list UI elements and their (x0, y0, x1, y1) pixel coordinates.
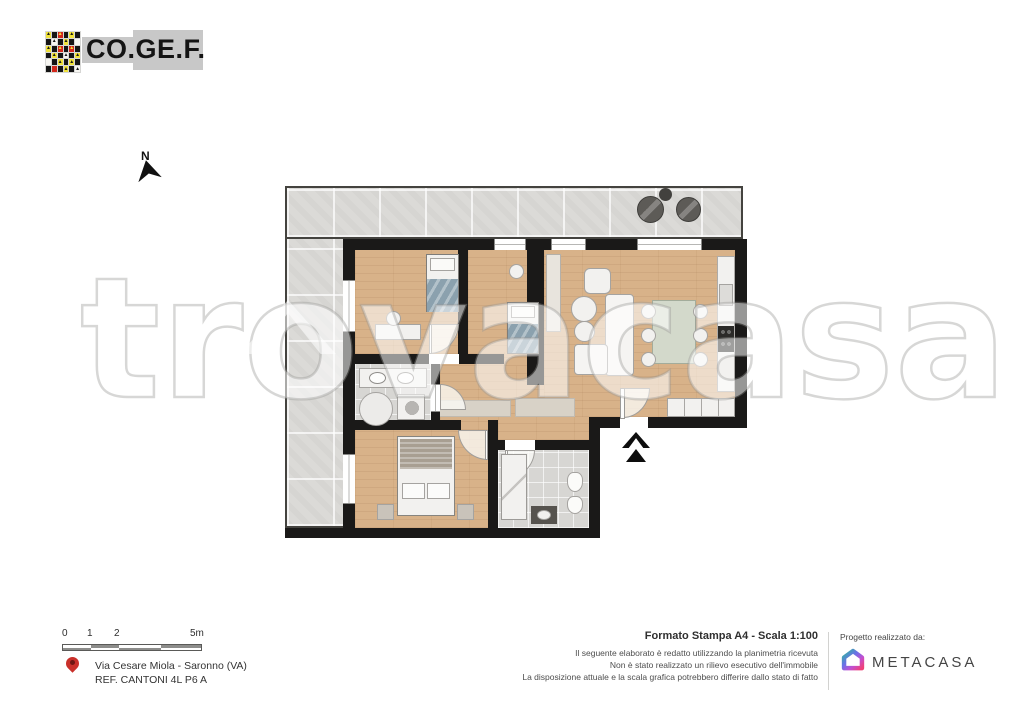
metacasa-brand-text: METACASA (872, 654, 977, 671)
wall-entry-side (589, 417, 600, 538)
bed-blanket (508, 324, 538, 353)
mosaic-cell (52, 59, 57, 65)
mosaic-cell (64, 32, 69, 38)
mosaic-cell: ▲ (64, 39, 69, 45)
mosaic-cell: ▲ (58, 32, 63, 38)
mosaic-cell: ▲ (64, 66, 69, 72)
mosaic-cell: ▲ (69, 32, 74, 38)
mosaic-cell (69, 39, 74, 45)
scale-bar (62, 644, 202, 651)
metacasa-house-icon (840, 647, 866, 673)
stove (718, 326, 734, 352)
credits-label: Progetto realizzato da: (840, 632, 925, 642)
mosaic-cell: ▲ (69, 46, 74, 52)
terrace-chair (676, 197, 701, 222)
mosaic-cell: ▲ (64, 53, 69, 59)
disclaimer-line: Non è stato realizzato un rilievo esecut… (610, 660, 818, 670)
window-terrace-door (637, 239, 702, 250)
doorway-floor (504, 352, 527, 366)
door-gap-bathroom1 (431, 384, 440, 412)
pouf (571, 296, 597, 322)
mosaic-cell: ▲ (46, 32, 51, 38)
agency-logo-text: CO.GE.F. (86, 34, 206, 65)
desk-chair (386, 311, 401, 326)
nightstand (457, 504, 474, 520)
mosaic-cell (64, 46, 69, 52)
mosaic-cell (46, 59, 51, 65)
dining-chair (641, 304, 656, 319)
vanity (531, 506, 557, 524)
sink (369, 372, 386, 384)
print-format-title: Formato Stampa A4 - Scala 1:100 (645, 630, 818, 642)
room-entry (498, 417, 589, 440)
pouf (574, 321, 595, 342)
dining-chair (693, 328, 708, 343)
mosaic-cell: ▲ (52, 39, 57, 45)
window-top-2 (551, 239, 586, 250)
dining-table (652, 300, 696, 364)
nightstand (377, 504, 394, 520)
location-pin-dot (70, 660, 75, 665)
single-bed-1 (426, 254, 459, 312)
sofa-chaise (574, 344, 608, 375)
disclaimer-line: La disposizione attuale e la scala grafi… (522, 672, 818, 682)
scale-tick-5m: 5m (190, 628, 204, 639)
mosaic-cell (75, 46, 80, 52)
mosaic-cell: ▲ (75, 66, 80, 72)
terrace-table (659, 188, 672, 201)
wall-bath2-top-a (498, 440, 505, 450)
wall-bed1-bed2 (458, 250, 468, 354)
kitchen-sink (719, 284, 733, 306)
bed-blanket (427, 279, 458, 312)
dining-chair (693, 304, 708, 319)
mosaic-cell: ▲ (58, 59, 63, 65)
mosaic-cell (58, 39, 63, 45)
dining-chair (641, 328, 656, 343)
mosaic-cell (75, 59, 80, 65)
bed-blanket (400, 439, 452, 469)
pillow (511, 306, 535, 318)
mosaic-cell (69, 66, 74, 72)
wall-bath2-top-b (535, 440, 589, 450)
armchair (584, 268, 611, 294)
disclaimer-line: Il seguente elaborato è redatto utilizza… (575, 648, 818, 658)
single-bed-2 (507, 302, 539, 354)
mosaic-cell (75, 39, 80, 45)
shower-tub (359, 392, 393, 426)
cogef-mosaic-icon: ▲▲▲▲▲▲▲▲▲▲▲▲▲▲▲ (45, 31, 81, 73)
mosaic-cell: ▲ (58, 46, 63, 52)
mosaic-cell (46, 39, 51, 45)
sink (537, 510, 551, 520)
scale-tick-0: 0 (62, 628, 68, 639)
window-bedroom3 (343, 454, 355, 504)
mosaic-cell (58, 66, 63, 72)
wardrobe (546, 254, 561, 332)
double-bed (397, 436, 455, 516)
kitchen-counter (717, 256, 735, 392)
mosaic-cell (46, 53, 51, 59)
window-top-1 (494, 239, 526, 250)
washing-machine (397, 394, 425, 420)
wall-bed1-hall (355, 354, 429, 364)
dining-chair (641, 352, 656, 367)
mosaic-cell (52, 66, 57, 72)
north-label: N (141, 149, 150, 163)
mosaic-cell: ▲ (69, 59, 74, 65)
mosaic-cell: ▲ (46, 46, 51, 52)
entrance-triangle (626, 449, 646, 462)
entrance-arrow-icon (622, 432, 650, 462)
mosaic-cell: ▲ (52, 53, 57, 59)
sofa (605, 294, 634, 376)
entry-rug (515, 398, 575, 417)
scale-tick-1: 1 (87, 628, 93, 639)
shower-stall (501, 454, 527, 520)
sink (397, 372, 414, 384)
window-bedroom1 (343, 280, 355, 332)
mosaic-cell (52, 32, 57, 38)
pillow (402, 483, 425, 499)
mosaic-cell (75, 32, 80, 38)
mosaic-cell (64, 59, 69, 65)
dining-chair (693, 352, 708, 367)
terrace-chair (637, 196, 664, 223)
wall-bed3-bath2 (488, 420, 498, 528)
entrance-chevron (622, 432, 650, 448)
terrace-top (285, 186, 743, 239)
floor-plan (283, 184, 747, 540)
mosaic-cell (69, 53, 74, 59)
door-leaf-bedroom3 (485, 430, 488, 460)
ceiling-lamp (509, 264, 524, 279)
mosaic-cell (52, 46, 57, 52)
bidet (567, 496, 583, 514)
kitchen-cabinets (667, 398, 735, 417)
door-leaf-bedroom1 (429, 324, 432, 354)
wall-bottom-living (589, 417, 747, 428)
pillow (430, 258, 455, 271)
pillow (427, 483, 450, 499)
wall-right (735, 239, 747, 428)
mosaic-cell (46, 66, 51, 72)
desk (375, 324, 421, 340)
mosaic-cell (58, 53, 63, 59)
wall-bottom (285, 528, 600, 538)
footer-divider (828, 632, 829, 690)
reference-line: REF. CANTONI 4L P6 A (95, 674, 207, 686)
toilet (567, 472, 583, 492)
address-line: Via Cesare Miola - Saronno (VA) (95, 660, 247, 672)
scale-tick-2: 2 (114, 628, 120, 639)
entrance-door-leaf (620, 388, 625, 419)
mosaic-cell: ▲ (75, 53, 80, 59)
wall-bed2-hall (459, 354, 504, 364)
